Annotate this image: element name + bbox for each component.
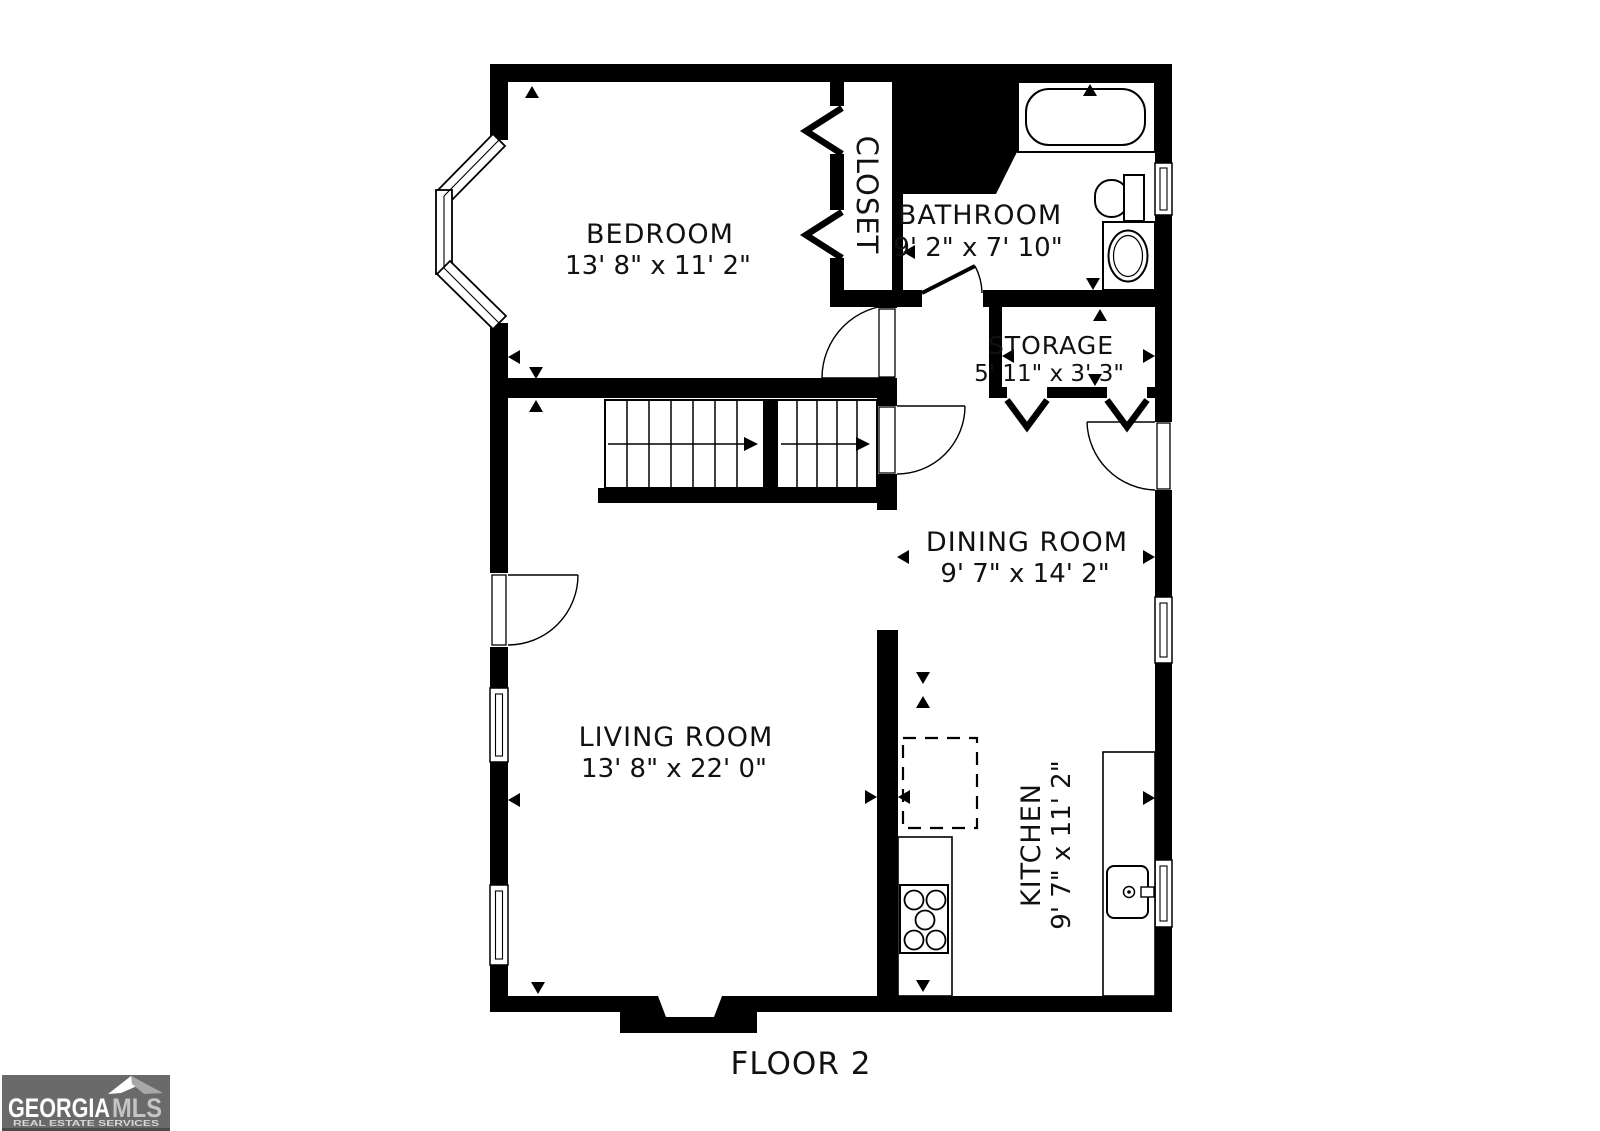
measure-arrow-icon bbox=[508, 793, 520, 807]
closet-label: CLOSET bbox=[850, 136, 884, 255]
kitchen-sink-icon bbox=[1107, 866, 1154, 918]
measure-arrow-icon bbox=[525, 86, 539, 98]
living-room-label: LIVING ROOM 13' 8" x 22' 0" bbox=[579, 722, 774, 784]
svg-text:13' 8" x 22' 0": 13' 8" x 22' 0" bbox=[581, 754, 767, 784]
door-icon bbox=[492, 575, 578, 645]
svg-text:9' 2" x 7' 10": 9' 2" x 7' 10" bbox=[893, 233, 1062, 263]
svg-text:LIVING ROOM: LIVING ROOM bbox=[579, 722, 774, 753]
staircase bbox=[598, 400, 877, 503]
kitchen-island-dashed bbox=[903, 738, 977, 828]
measure-arrow-icon bbox=[865, 790, 877, 804]
measure-arrow-icon bbox=[916, 696, 930, 708]
window-icon bbox=[1155, 163, 1172, 215]
svg-text:BATHROOM: BATHROOM bbox=[898, 200, 1062, 231]
measure-arrow-icon bbox=[529, 400, 543, 412]
measure-arrow-icon bbox=[1093, 309, 1107, 321]
bathroom-sink-icon bbox=[1103, 222, 1155, 290]
svg-text:STORAGE: STORAGE bbox=[988, 331, 1114, 360]
window-icon bbox=[1155, 597, 1172, 663]
door-icon bbox=[922, 266, 982, 293]
bifold-door-icon bbox=[1007, 400, 1047, 427]
kitchen-label: KITCHEN 9' 7" x 11' 2" bbox=[1016, 760, 1077, 929]
window-icon bbox=[490, 885, 508, 965]
measure-arrow-icon bbox=[1143, 550, 1155, 564]
measure-arrow-icon bbox=[531, 982, 545, 994]
window-icon bbox=[1155, 860, 1172, 927]
svg-text:KITCHEN: KITCHEN bbox=[1016, 783, 1047, 907]
window-icon bbox=[490, 688, 508, 762]
bay-window bbox=[436, 134, 506, 329]
measure-arrow-icon bbox=[1143, 349, 1155, 363]
measure-arrow-icon bbox=[897, 550, 909, 564]
svg-text:DINING ROOM: DINING ROOM bbox=[926, 527, 1128, 558]
bifold-door-icon bbox=[806, 212, 842, 258]
storage-label: STORAGE 5' 11" x 3' 3" bbox=[974, 331, 1124, 387]
door-icon bbox=[879, 406, 965, 474]
measure-arrow-icon bbox=[508, 350, 520, 364]
svg-text:9' 7" x 11' 2": 9' 7" x 11' 2" bbox=[1047, 760, 1077, 929]
svg-text:5' 11" x 3' 3": 5' 11" x 3' 3" bbox=[974, 361, 1124, 387]
bedroom-label: BEDROOM 13' 8" x 11' 2" bbox=[565, 219, 751, 281]
stove-icon bbox=[900, 885, 948, 953]
measure-arrow-icon bbox=[916, 672, 930, 684]
svg-text:CLOSET: CLOSET bbox=[850, 136, 884, 255]
door-icon bbox=[1087, 422, 1170, 490]
measure-arrow-icon bbox=[529, 367, 543, 379]
svg-text:13' 8" x 11' 2": 13' 8" x 11' 2" bbox=[565, 251, 751, 281]
floor-plan: BEDROOM 13' 8" x 11' 2" CLOSET BATHROOM … bbox=[0, 0, 1600, 1131]
dining-room-label: DINING ROOM 9' 7" x 14' 2" bbox=[926, 527, 1128, 589]
logo-tagline: REAL ESTATE SERVICES bbox=[13, 1119, 160, 1128]
bathroom-label: BATHROOM 9' 2" x 7' 10" bbox=[893, 200, 1062, 263]
door-icon bbox=[822, 305, 895, 378]
bifold-door-icon bbox=[806, 108, 842, 154]
svg-text:9' 7" x 14' 2": 9' 7" x 14' 2" bbox=[940, 559, 1109, 589]
bifold-door-icon bbox=[1107, 400, 1147, 427]
measure-arrow-icon bbox=[1086, 278, 1100, 290]
toilet-icon bbox=[1095, 175, 1144, 221]
georgia-mls-logo: GEORGIA MLS REAL ESTATE SERVICES bbox=[2, 1075, 170, 1131]
floor-plan-page: BEDROOM 13' 8" x 11' 2" CLOSET BATHROOM … bbox=[0, 0, 1600, 1131]
floor-label: FLOOR 2 bbox=[731, 1046, 872, 1082]
svg-text:BEDROOM: BEDROOM bbox=[586, 219, 734, 250]
